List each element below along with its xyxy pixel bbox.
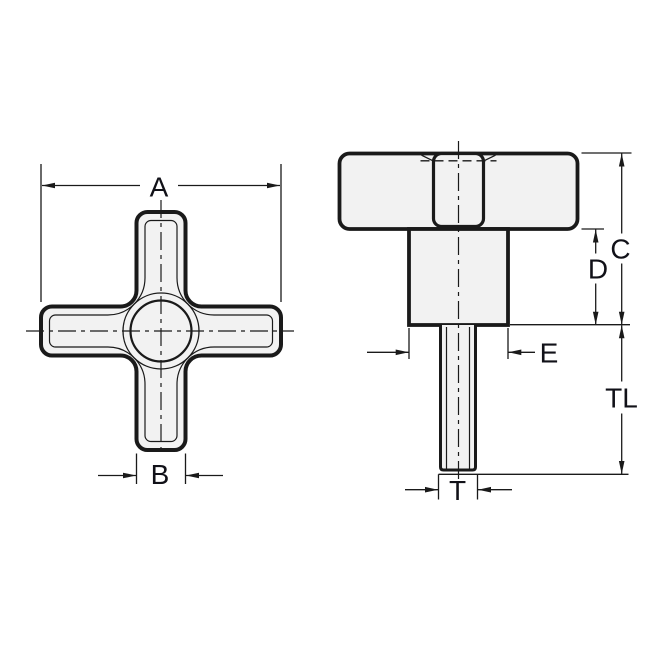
dim-d-arrow-top (593, 230, 599, 243)
dim-c-arrow-top (619, 154, 625, 167)
dim-c-arrow-bottom (619, 312, 625, 325)
dim-b-arrow-left (123, 473, 136, 479)
dim-b-arrow-right (186, 473, 199, 479)
side-view (340, 141, 578, 481)
label-TL: TL (605, 383, 638, 414)
dim-e-arrow-left (396, 350, 409, 356)
dim-t-arrow-left (425, 487, 438, 493)
dim-tl-arrow-top (619, 325, 625, 338)
label-D: D (588, 254, 608, 285)
technical-drawing-page: A B C D E TL T (0, 0, 670, 670)
label-A: A (150, 172, 169, 203)
dim-a-arrow-left (42, 183, 55, 189)
label-E: E (540, 338, 559, 369)
label-B: B (151, 459, 170, 490)
dim-tl-arrow-bottom (619, 461, 625, 474)
dim-t-arrow-right (478, 487, 491, 493)
label-T: T (449, 475, 466, 506)
label-C: C (610, 234, 630, 265)
drawing-canvas: A B C D E TL T (0, 0, 670, 670)
dim-e-arrow-right (508, 350, 521, 356)
front-view (26, 200, 294, 455)
dim-a-arrow-right (267, 183, 280, 189)
dim-d-arrow-bottom (593, 312, 599, 325)
